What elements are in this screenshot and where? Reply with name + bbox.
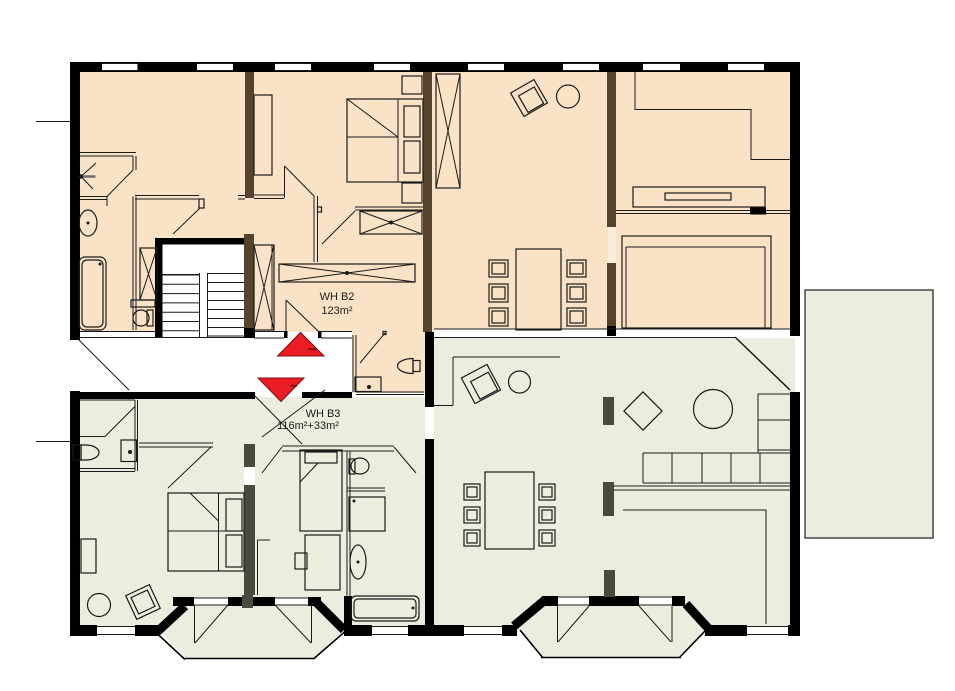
svg-text:WH B3: WH B3 [306, 408, 341, 420]
svg-text:116m²+33m²: 116m²+33m² [277, 420, 339, 432]
svg-text:WH B2: WH B2 [320, 291, 355, 303]
svg-text:123m²: 123m² [321, 305, 353, 317]
